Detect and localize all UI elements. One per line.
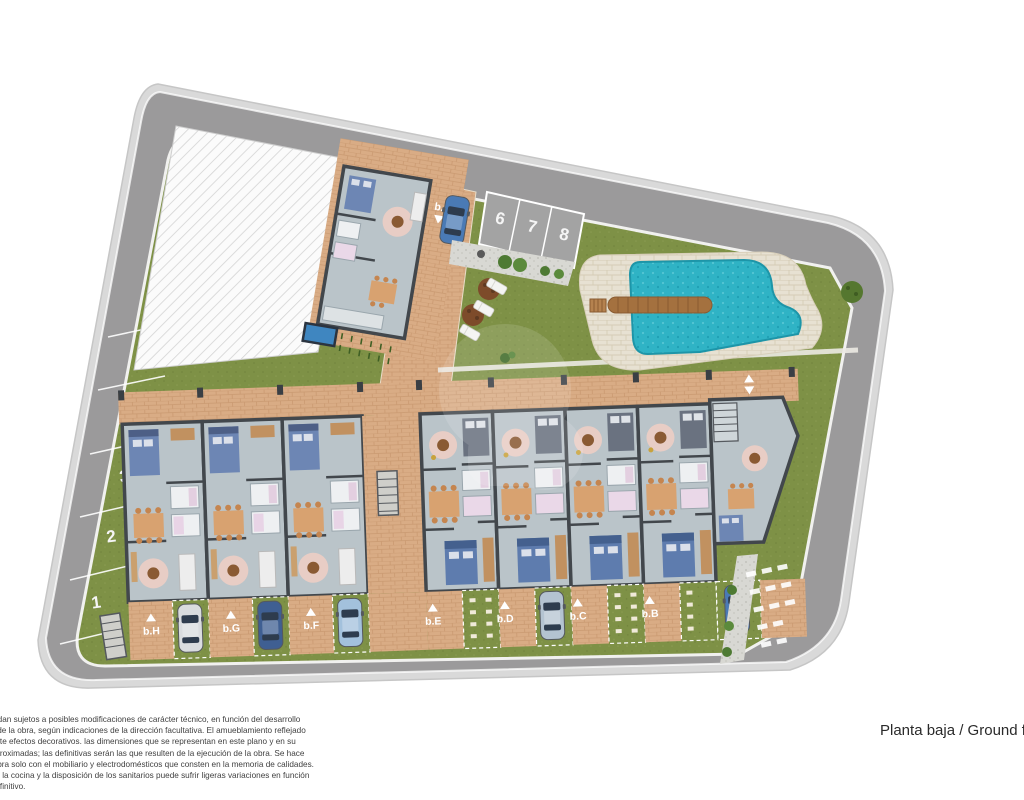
bush — [498, 255, 512, 269]
disclaimer-line: o de la cocina y la disposición de los s… — [0, 770, 284, 781]
tree — [841, 281, 863, 303]
townhouse-unit — [282, 416, 368, 597]
floor-plan-page: 5 4 3 2 1 6 7 8 — [0, 0, 1024, 800]
dining-table — [368, 280, 397, 304]
bush — [540, 266, 550, 276]
bed — [344, 175, 376, 213]
bathroom — [336, 220, 360, 239]
disclaimer-line: o y de la obra, según indicaciones de la… — [0, 725, 284, 736]
floor-title: Planta baja / Ground f — [880, 722, 1024, 739]
dining-table — [728, 488, 755, 509]
bush — [554, 269, 564, 279]
unit-label-text: b.D — [497, 613, 515, 626]
disclaimer: quedan sujetos a posibles modificaciones… — [0, 714, 284, 792]
disclaimer-line: la obra solo con el mobiliario y electro… — [0, 759, 284, 770]
car — [537, 591, 567, 640]
disclaimer-line: n aproximadas; las definitivas serán las… — [0, 748, 284, 759]
bush — [724, 621, 734, 631]
unit-label-text: b.C — [569, 610, 587, 623]
unit-label-text: b.G — [222, 622, 240, 635]
unit-label-text: b.B — [641, 608, 659, 621]
townhouse-unit — [122, 422, 208, 603]
pool-wooden-bench — [608, 297, 712, 313]
stairs — [377, 471, 399, 516]
disclaimer-line: e definitivo. — [0, 781, 284, 792]
townhouse-unit — [202, 419, 288, 600]
disclaimer-line: quedan sujetos a posibles modificaciones… — [0, 714, 284, 725]
bush — [722, 647, 732, 657]
unit-label-text: b.F — [303, 620, 320, 633]
rock — [477, 250, 485, 258]
site-plan-svg: 5 4 3 2 1 6 7 8 — [0, 0, 1024, 800]
disclaimer-line: mente efectos decorativos. las dimension… — [0, 736, 284, 747]
bush — [727, 585, 737, 595]
car — [255, 601, 285, 650]
bathroom — [333, 242, 357, 261]
plunge-pool — [303, 323, 338, 346]
car — [335, 598, 365, 647]
unit-label-text: b.H — [143, 625, 160, 638]
car — [176, 604, 206, 653]
stairs — [713, 403, 738, 442]
bush — [513, 258, 527, 272]
townhouse-unit — [637, 404, 716, 584]
unit-label-text: b.E — [425, 615, 442, 628]
